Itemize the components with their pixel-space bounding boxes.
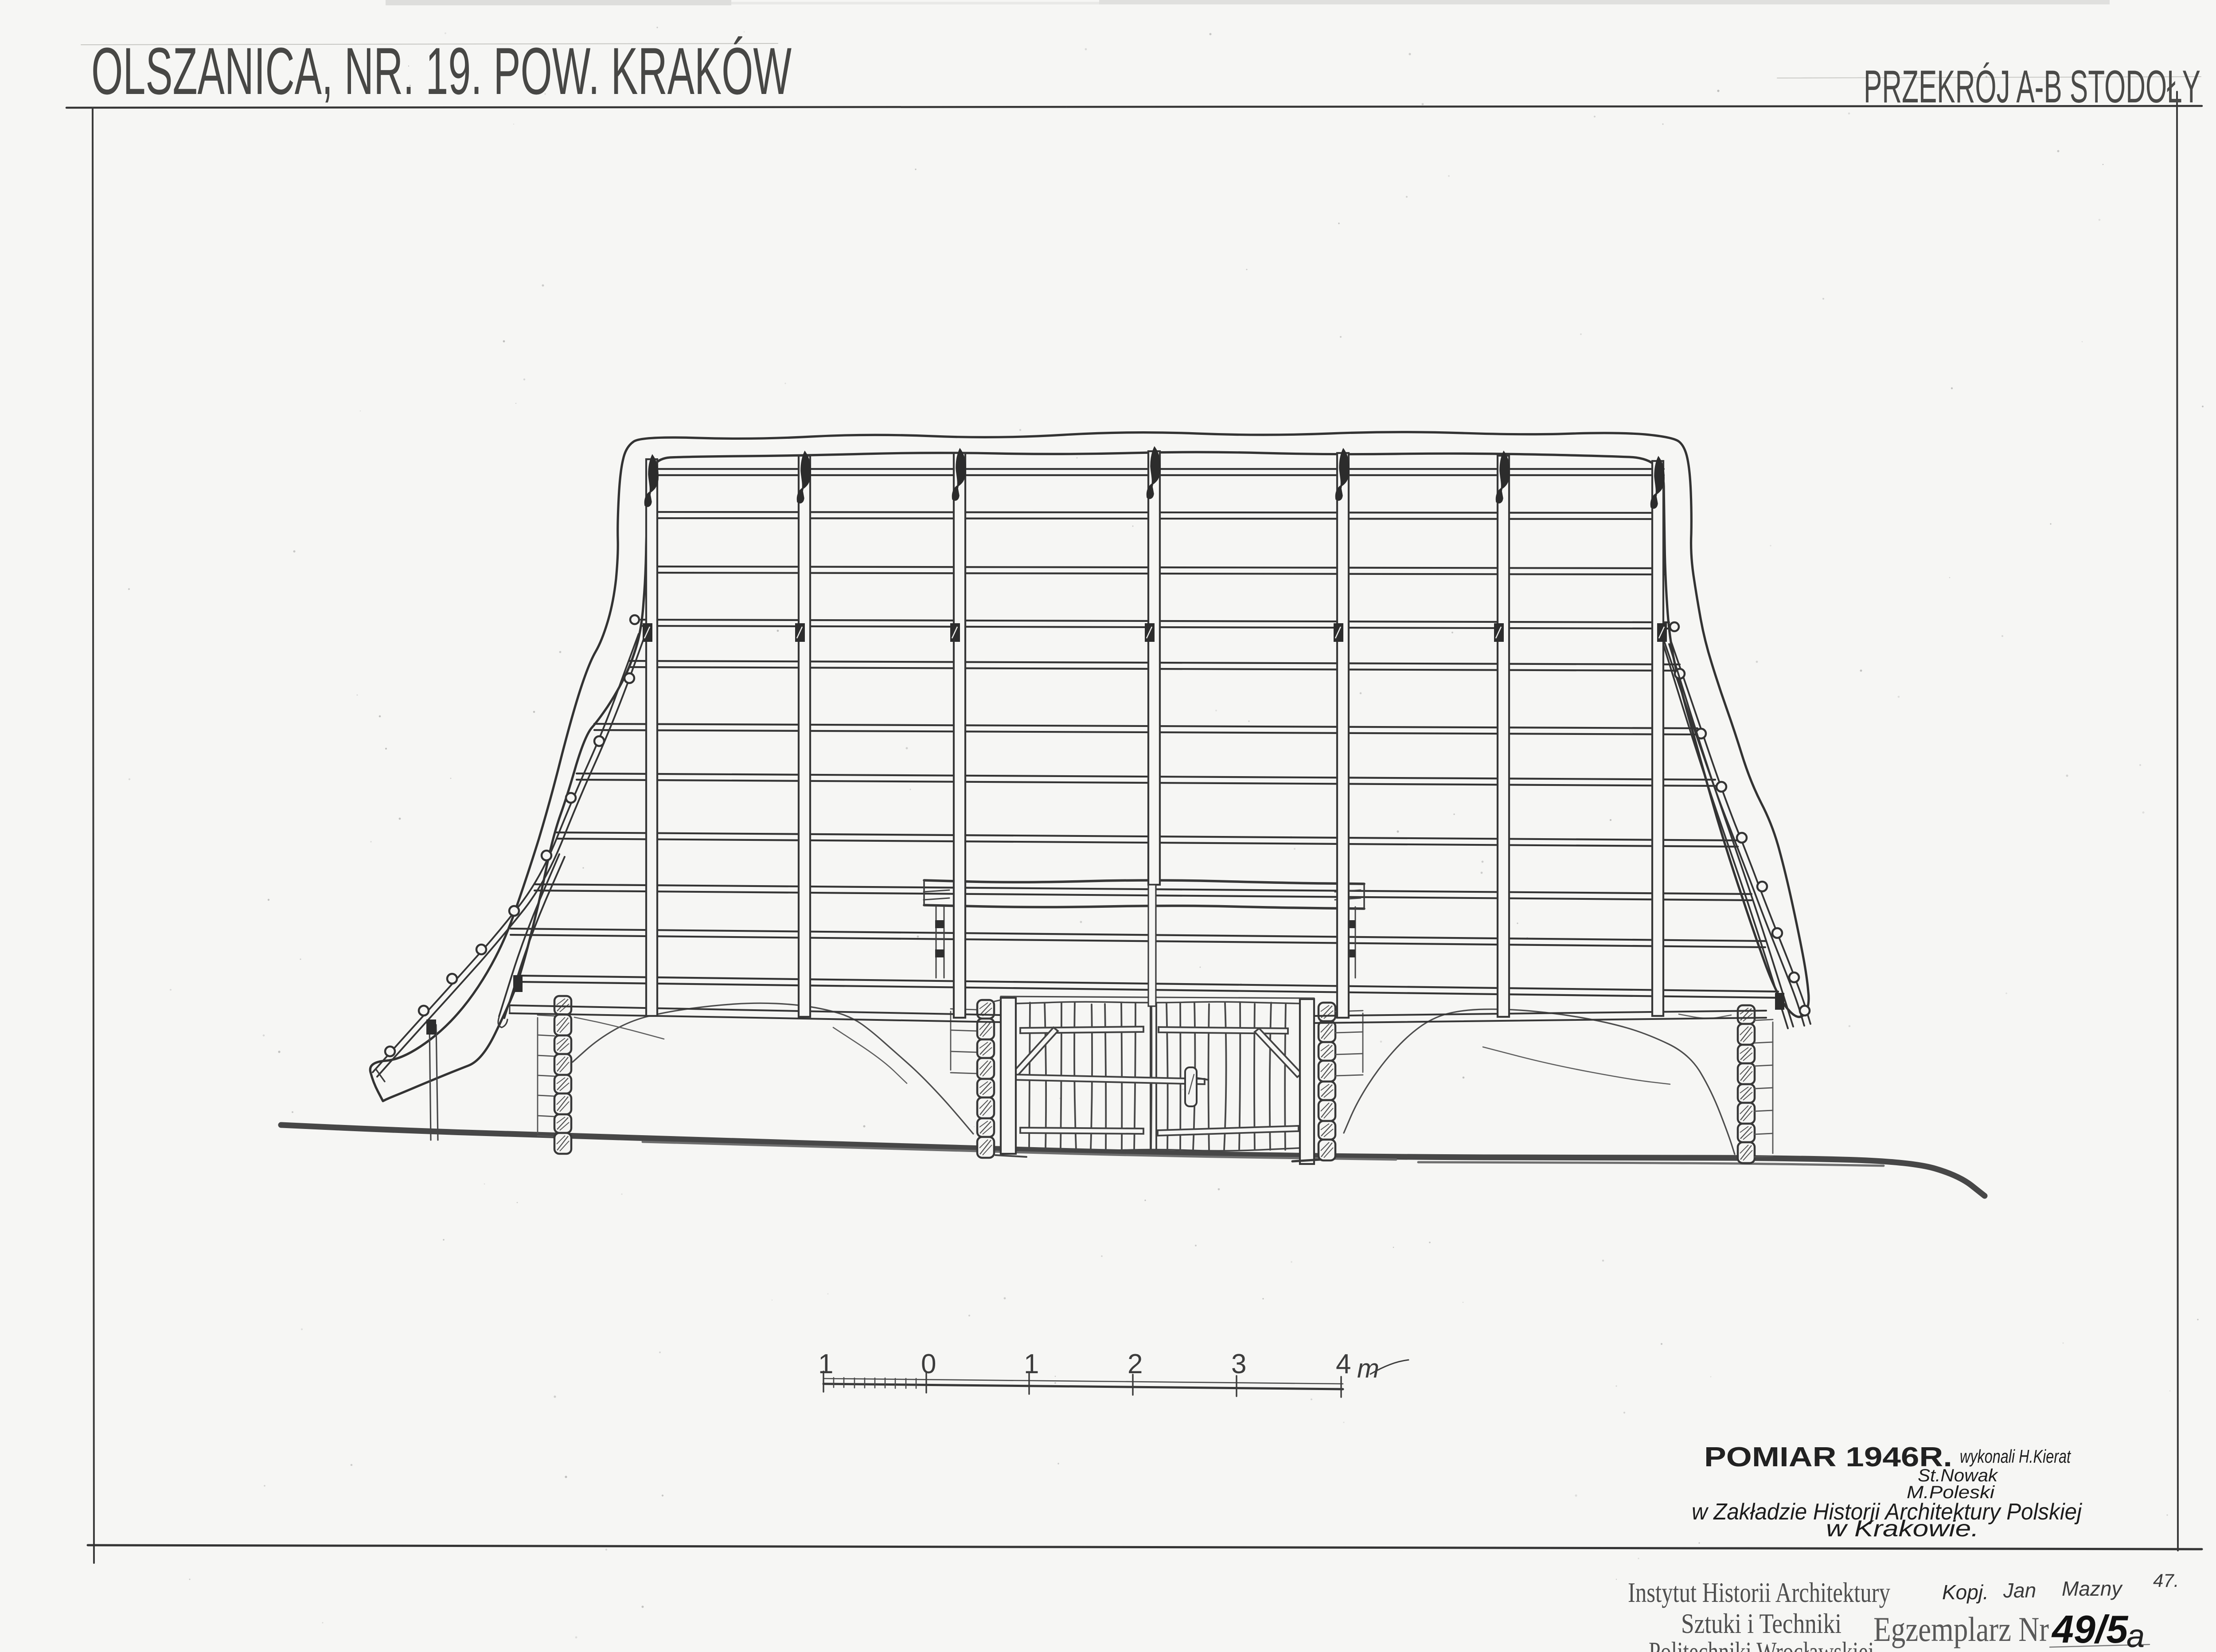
svg-text:Mazny: Mazny xyxy=(2062,1577,2123,1600)
svg-text:Politechniki Wrocławskiej: Politechniki Wrocławskiej xyxy=(1649,1636,1874,1652)
svg-text:w Krakowie.: w Krakowie. xyxy=(1826,1516,1979,1542)
svg-text:m: m xyxy=(1357,1354,1379,1383)
svg-text:a: a xyxy=(2126,1617,2145,1652)
svg-text:4: 4 xyxy=(1336,1349,1351,1379)
svg-text:Jan: Jan xyxy=(2003,1579,2036,1602)
svg-text:OLSZANICA, NR. 19. POW. KRAKÓW: OLSZANICA, NR. 19. POW. KRAKÓW xyxy=(91,34,792,108)
svg-text:Kopj.: Kopj. xyxy=(1942,1581,1989,1604)
svg-text:3: 3 xyxy=(1231,1349,1246,1379)
svg-text:49/5: 49/5 xyxy=(2051,1607,2128,1651)
svg-text:Egzemplarz Nr: Egzemplarz Nr xyxy=(1873,1610,2049,1648)
svg-text:2: 2 xyxy=(1128,1349,1143,1379)
svg-text:1: 1 xyxy=(1024,1349,1039,1379)
svg-text:0: 0 xyxy=(921,1349,936,1379)
svg-text:1: 1 xyxy=(818,1349,833,1379)
svg-text:PRZEKRÓJ A-B STODOŁY: PRZEKRÓJ A-B STODOŁY xyxy=(1864,61,2200,113)
svg-text:POMIAR 1946R.: POMIAR 1946R. xyxy=(1704,1442,1952,1472)
svg-text:wykonali H.Kierat: wykonali H.Kierat xyxy=(1960,1446,2072,1467)
svg-text:47.: 47. xyxy=(2153,1570,2179,1591)
svg-text:Sztuki i Techniki: Sztuki i Techniki xyxy=(1681,1608,1841,1639)
svg-text:Instytut Historii Architektury: Instytut Historii Architektury xyxy=(1628,1577,1890,1608)
